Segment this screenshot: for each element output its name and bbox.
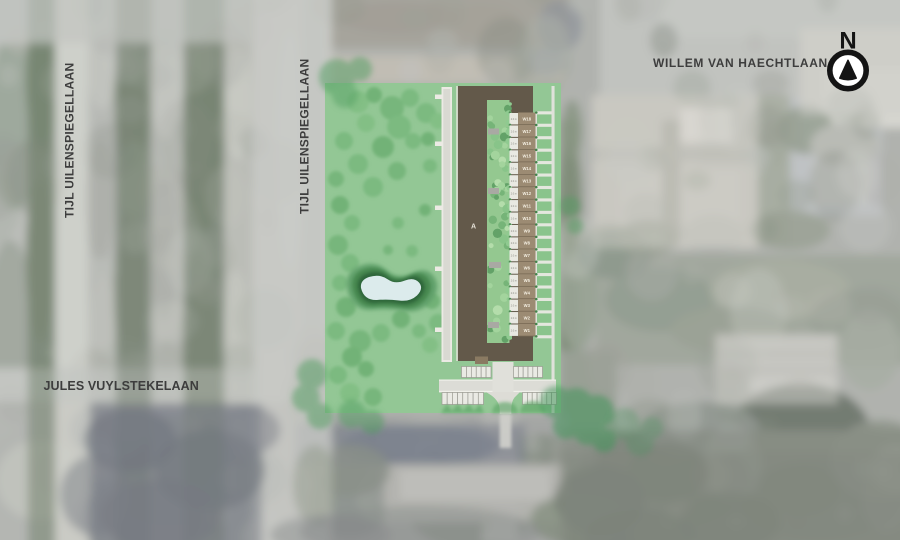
svg-text:W17: W17 bbox=[522, 129, 531, 134]
svg-text:2.0 m: 2.0 m bbox=[511, 280, 517, 283]
svg-text:2.0 m: 2.0 m bbox=[511, 192, 517, 195]
svg-text:2.0 m: 2.0 m bbox=[511, 242, 517, 245]
svg-text:2.0 m: 2.0 m bbox=[511, 168, 517, 171]
svg-text:2.0 m: 2.0 m bbox=[511, 255, 517, 258]
svg-text:2.0 m: 2.0 m bbox=[511, 317, 517, 320]
svg-text:W8: W8 bbox=[524, 241, 531, 246]
svg-text:W16: W16 bbox=[522, 141, 531, 146]
svg-text:JULES VUYLSTEKELAAN: JULES VUYLSTEKELAAN bbox=[44, 379, 199, 393]
svg-text:2.0 m: 2.0 m bbox=[511, 155, 517, 158]
svg-text:2.0 m: 2.0 m bbox=[511, 217, 517, 220]
svg-text:2.0 m: 2.0 m bbox=[511, 180, 517, 183]
svg-text:2.0 m: 2.0 m bbox=[511, 292, 517, 295]
svg-text:A: A bbox=[471, 224, 476, 231]
svg-text:2.0 m: 2.0 m bbox=[511, 267, 517, 270]
svg-text:TIJL UILENSPIEGELLAAN: TIJL UILENSPIEGELLAAN bbox=[63, 63, 77, 218]
svg-text:W13: W13 bbox=[522, 179, 531, 184]
svg-text:2.0 m: 2.0 m bbox=[511, 118, 517, 121]
svg-text:TIJL UILENSPIEGELLAAN: TIJL UILENSPIEGELLAAN bbox=[298, 59, 312, 214]
svg-text:W4: W4 bbox=[524, 290, 531, 295]
svg-text:2.0 m: 2.0 m bbox=[511, 205, 517, 208]
svg-text:2.0 m: 2.0 m bbox=[511, 230, 517, 233]
svg-text:W1: W1 bbox=[524, 328, 531, 333]
svg-text:W5: W5 bbox=[524, 278, 531, 283]
svg-text:2.0 m: 2.0 m bbox=[511, 143, 517, 146]
svg-text:W12: W12 bbox=[522, 191, 531, 196]
svg-text:2.0 m: 2.0 m bbox=[511, 304, 517, 307]
svg-text:2.0 m: 2.0 m bbox=[511, 130, 517, 133]
svg-text:2.0 m: 2.0 m bbox=[511, 329, 517, 332]
svg-text:W6: W6 bbox=[524, 266, 531, 271]
svg-text:W3: W3 bbox=[524, 303, 531, 308]
svg-text:W14: W14 bbox=[522, 166, 531, 171]
svg-text:W10: W10 bbox=[522, 216, 531, 221]
svg-text:W15: W15 bbox=[522, 154, 531, 159]
svg-text:W7: W7 bbox=[524, 253, 531, 258]
svg-text:WILLEM VAN HAECHTLAAN: WILLEM VAN HAECHTLAAN bbox=[653, 56, 828, 70]
svg-text:W9: W9 bbox=[524, 228, 531, 233]
svg-text:W11: W11 bbox=[523, 203, 532, 208]
svg-text:W18: W18 bbox=[522, 116, 531, 121]
svg-text:W2: W2 bbox=[524, 315, 531, 320]
